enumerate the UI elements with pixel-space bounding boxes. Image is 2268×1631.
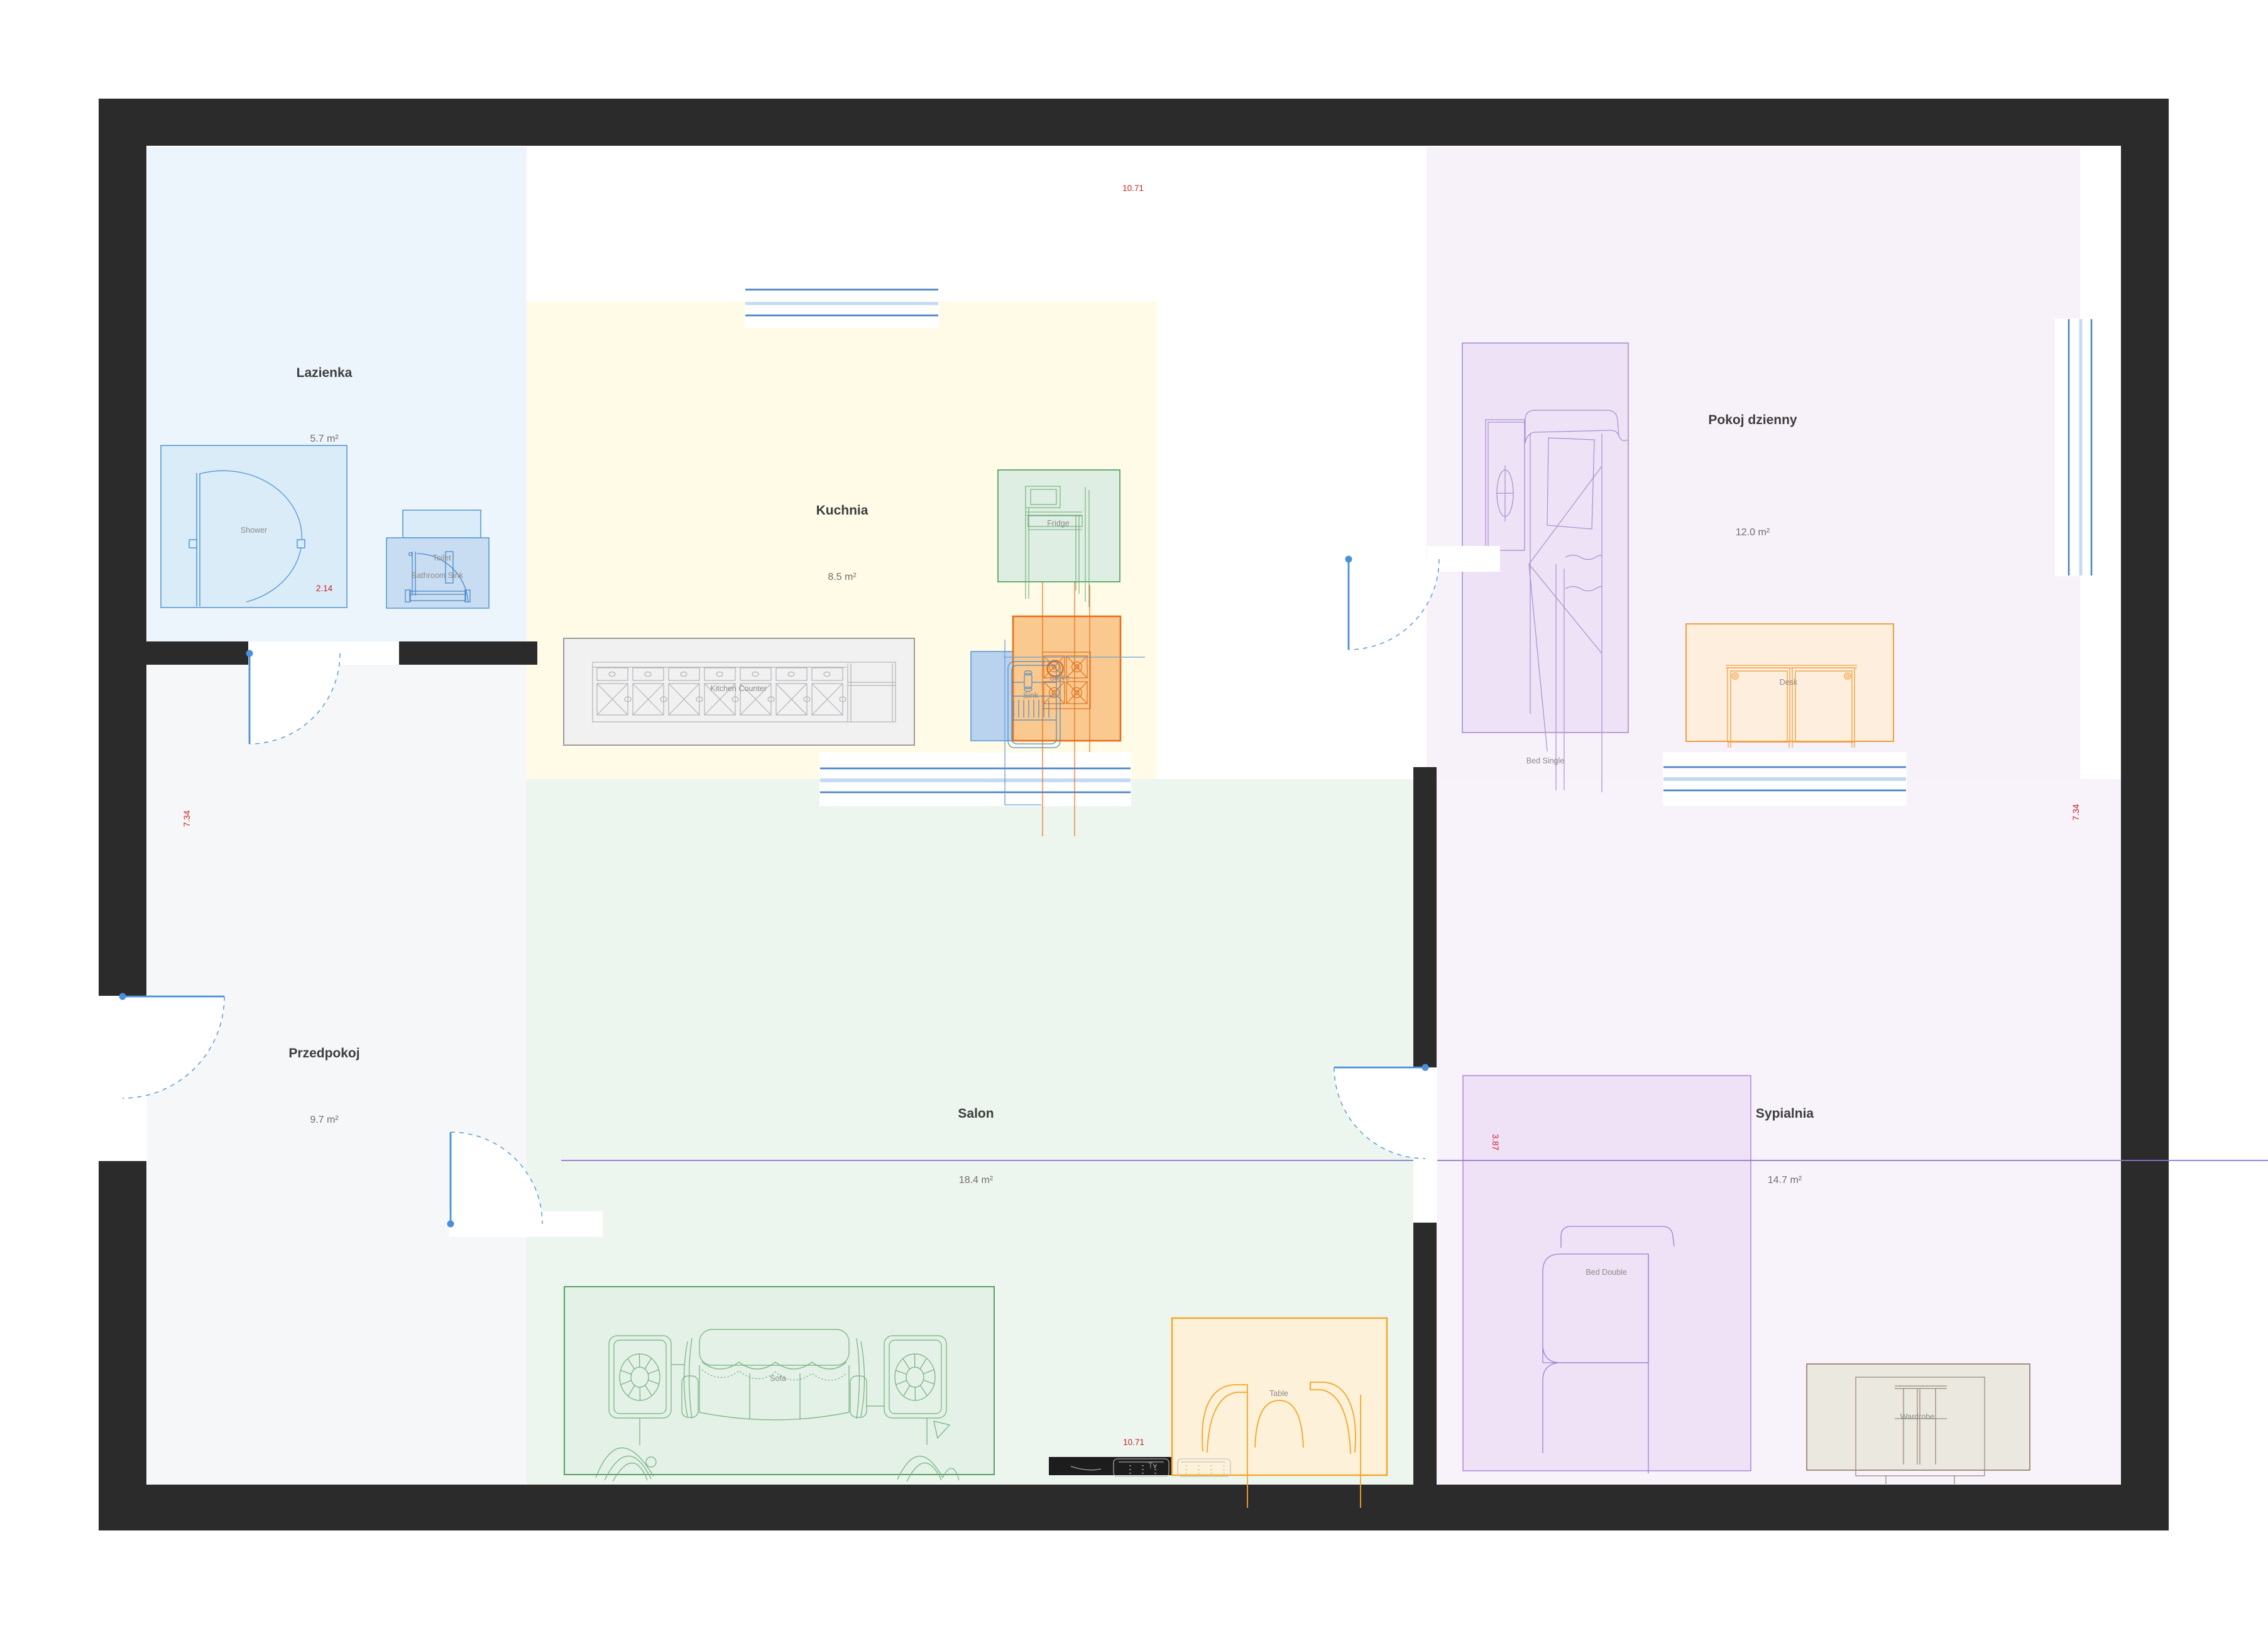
svg-text:12.0 m²: 12.0 m² [1736,527,1770,538]
svg-text:Wardrobe: Wardrobe [1900,1412,1934,1421]
svg-text:Kitchen Counter: Kitchen Counter [710,684,767,693]
svg-text:Pokoj dzienny: Pokoj dzienny [1708,413,1797,427]
svg-text:Bathroom Sink: Bathroom Sink [412,571,464,580]
svg-text:18.4 m²: 18.4 m² [959,1175,994,1186]
svg-text:3.87: 3.87 [1491,1134,1500,1150]
svg-text:Sypialnia: Sypialnia [1756,1106,1814,1121]
svg-text:7.34: 7.34 [182,810,192,827]
svg-text:10.71: 10.71 [1122,183,1144,193]
svg-text:Table: Table [1269,1389,1288,1398]
svg-text:8.5 m²: 8.5 m² [828,572,857,582]
svg-text:Salon: Salon [958,1106,994,1121]
svg-text:Przedpokoj: Przedpokoj [288,1046,359,1061]
svg-text:Toilet: Toilet [432,554,451,562]
svg-text:9.7 m²: 9.7 m² [310,1115,339,1125]
svg-text:14.7 m²: 14.7 m² [1768,1175,1802,1186]
svg-text:Stove: Stove [1049,674,1070,682]
svg-text:Shower: Shower [241,526,267,535]
svg-text:Fridge: Fridge [1047,519,1069,528]
svg-text:Kuchnia: Kuchnia [816,503,868,518]
svg-text:Lazienka: Lazienka [297,366,353,380]
svg-text:2.14: 2.14 [316,584,333,593]
svg-text:Sink: Sink [1023,691,1039,700]
svg-text:10.71: 10.71 [1123,1437,1144,1447]
svg-text:Bed Single: Bed Single [1526,756,1565,765]
svg-text:5.7 m²: 5.7 m² [310,434,339,444]
svg-text:Tv: Tv [1148,1461,1158,1470]
svg-text:Bed Double: Bed Double [1586,1268,1626,1277]
svg-text:Sofa: Sofa [770,1374,786,1383]
svg-text:7.34: 7.34 [2071,804,2081,821]
svg-text:Desk: Desk [1780,678,1798,687]
